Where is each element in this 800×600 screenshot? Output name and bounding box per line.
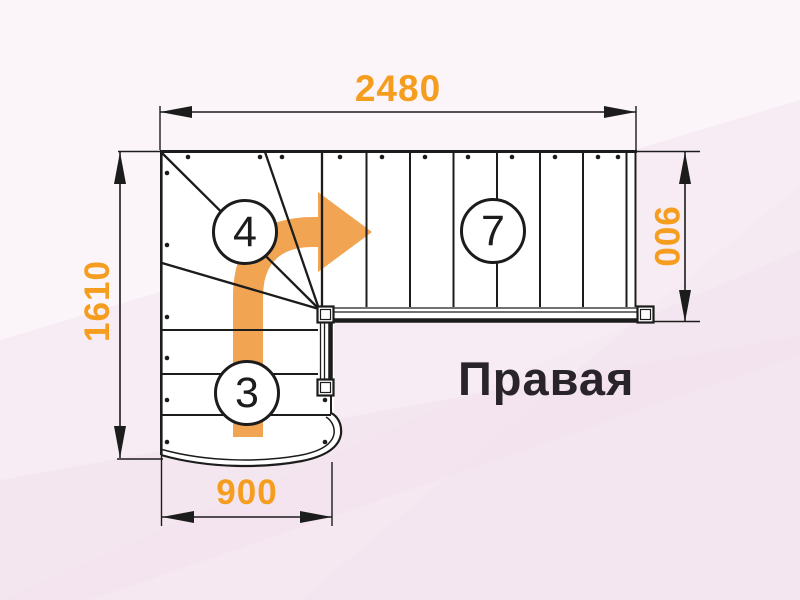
dimension-bottom-width: 900 [216,473,277,513]
upper-flight-step-count-badge: 7 [460,198,526,264]
staircase-plan-diagram: 2480 1610 900 900 4 7 3 Правая [0,0,800,600]
stair-type-label: Правая [458,355,634,402]
dimension-right-width: 900 [646,206,686,267]
dimension-left-height: 1610 [78,260,118,342]
dimension-top-width: 2480 [355,68,441,110]
winder-step-count-badge: 4 [212,199,278,265]
lower-flight-step-count-badge: 3 [214,360,280,426]
